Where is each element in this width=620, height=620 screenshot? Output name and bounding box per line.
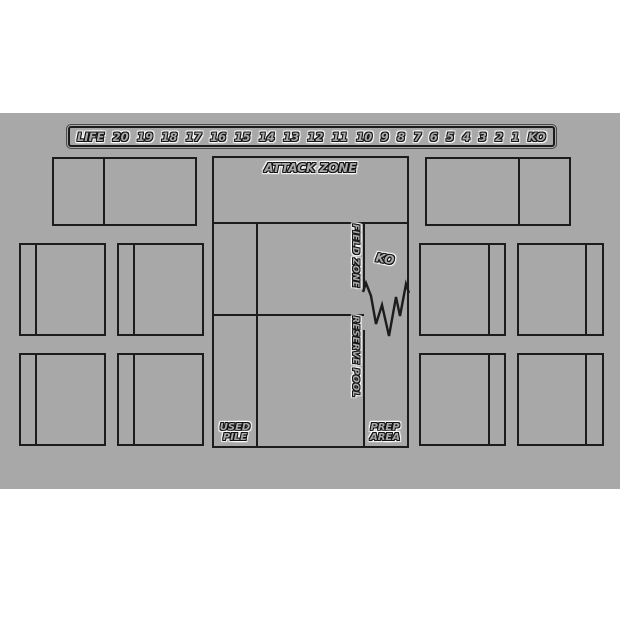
card-slot-divider — [585, 355, 587, 444]
card-slot-top-left — [52, 157, 197, 226]
life-value-11: 11 — [332, 130, 348, 144]
card-slot-right-3 — [419, 353, 506, 446]
card-slot-divider — [585, 245, 587, 334]
life-value-14: 14 — [259, 130, 275, 144]
life-value-15: 15 — [234, 130, 250, 144]
life-value-8: 8 — [397, 130, 405, 144]
card-slot-divider — [35, 355, 37, 444]
life-value-2: 2 — [495, 130, 503, 144]
playmat-background: LIFE 20 19 18 17 16 15 14 13 12 11 10 9 … — [0, 113, 620, 489]
card-slot-left-1 — [19, 243, 106, 336]
attack-zone: ATTACK ZONE — [214, 158, 407, 222]
used-pile-zone — [214, 222, 256, 446]
prep-area-label: PREP AREA — [363, 423, 407, 443]
card-slot-divider — [488, 355, 490, 444]
card-slot-top-right — [425, 157, 571, 226]
life-value-4: 4 — [462, 130, 470, 144]
card-slot-divider — [488, 245, 490, 334]
ko-burst-icon — [356, 276, 410, 342]
attack-zone-label: ATTACK ZONE — [214, 161, 407, 175]
life-value-ko: KO — [528, 130, 546, 144]
life-track: LIFE 20 19 18 17 16 15 14 13 12 11 10 9 … — [68, 126, 555, 147]
card-slot-divider — [103, 159, 105, 224]
life-value-20: 20 — [113, 130, 129, 144]
life-value-17: 17 — [186, 130, 202, 144]
card-slot-left-3 — [19, 353, 106, 446]
used-pile-label: USED PILE — [214, 423, 256, 443]
life-value-6: 6 — [430, 130, 438, 144]
life-value-9: 9 — [381, 130, 389, 144]
life-value-1: 1 — [512, 130, 520, 144]
life-value-12: 12 — [308, 130, 324, 144]
field-zone — [258, 222, 363, 314]
card-slot-divider — [35, 245, 37, 334]
card-slot-divider — [133, 245, 135, 334]
card-slot-left-4 — [117, 353, 204, 446]
card-slot-right-2 — [517, 243, 604, 336]
life-value-13: 13 — [283, 130, 299, 144]
card-slot-divider — [133, 355, 135, 444]
life-value-18: 18 — [161, 130, 177, 144]
card-slot-right-4 — [517, 353, 604, 446]
playmat-image: LIFE 20 19 18 17 16 15 14 13 12 11 10 9 … — [0, 0, 620, 620]
card-slot-divider — [518, 159, 520, 224]
life-value-16: 16 — [210, 130, 226, 144]
life-value-7: 7 — [413, 130, 421, 144]
life-track-label: LIFE — [77, 130, 104, 144]
card-slot-left-2 — [117, 243, 204, 336]
card-slot-right-1 — [419, 243, 506, 336]
life-value-5: 5 — [446, 130, 454, 144]
life-value-3: 3 — [479, 130, 487, 144]
life-value-19: 19 — [137, 130, 153, 144]
center-panel: ATTACK ZONE USED PILE FIELD ZONE RESERVE… — [212, 156, 409, 448]
life-value-10: 10 — [356, 130, 372, 144]
reserve-pool-zone — [258, 316, 363, 446]
